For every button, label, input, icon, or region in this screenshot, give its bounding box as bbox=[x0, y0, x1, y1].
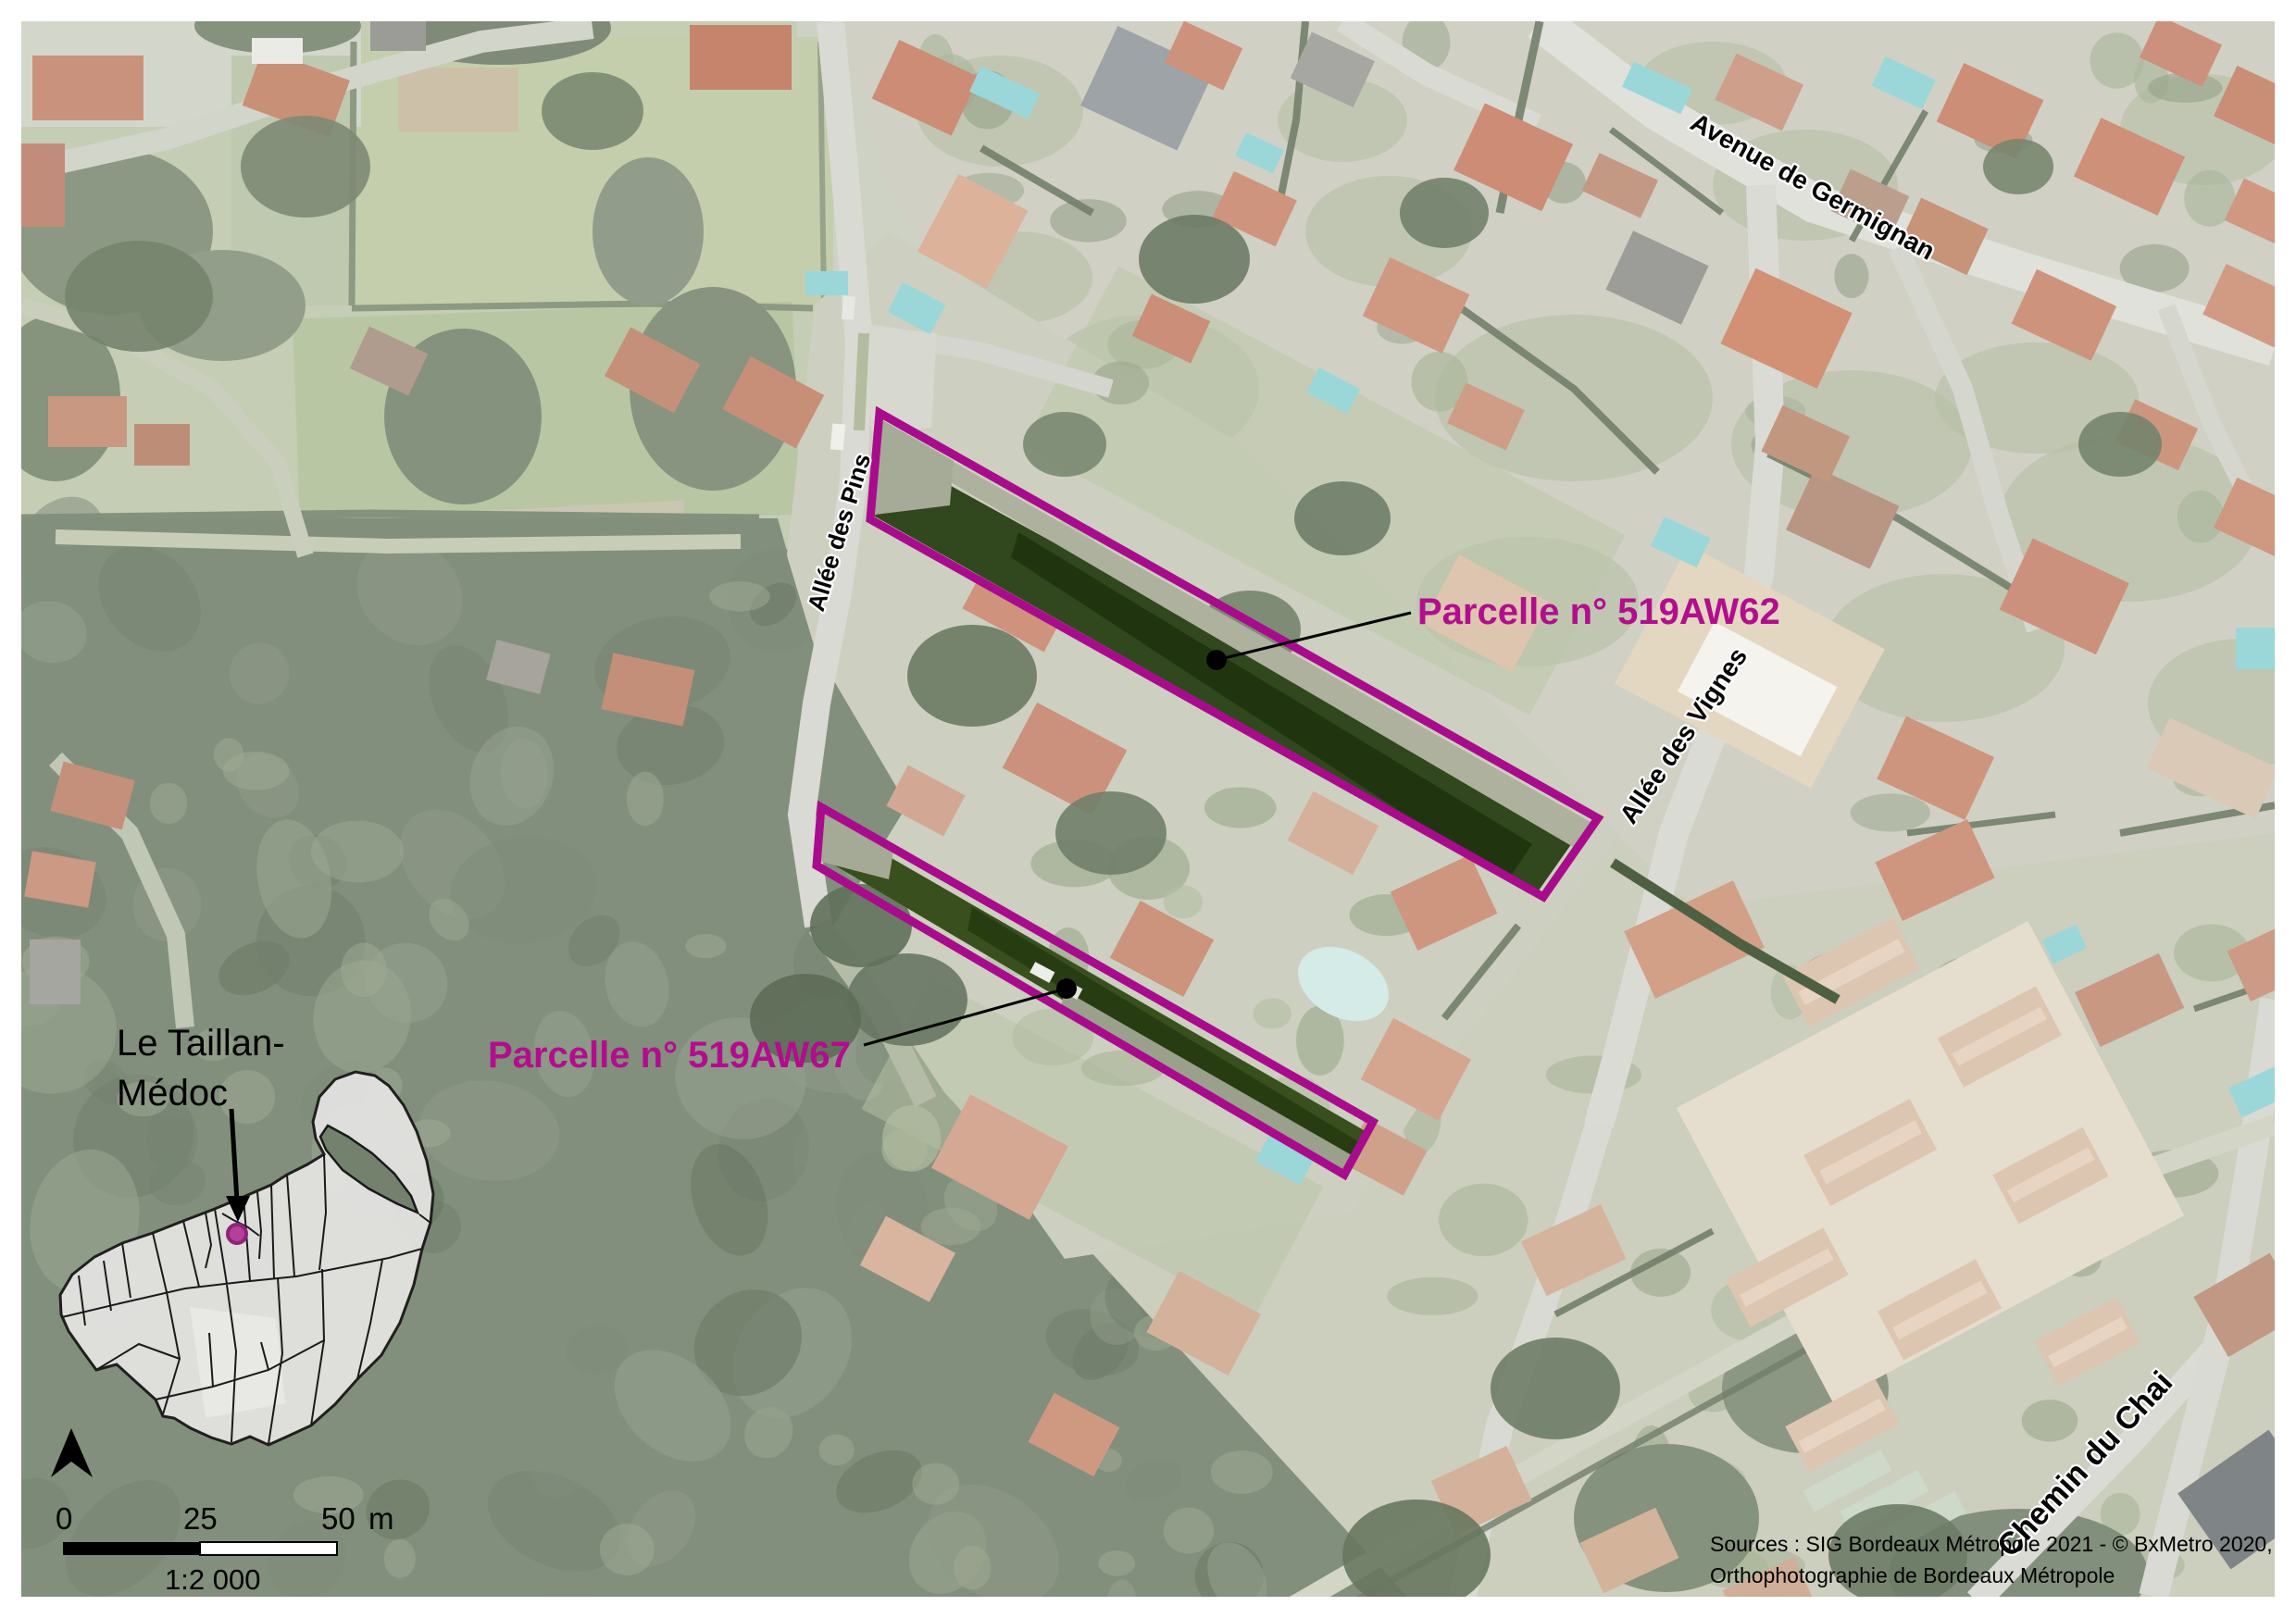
svg-text:Parcelle n° 519AW67: Parcelle n° 519AW67 bbox=[488, 1035, 851, 1076]
svg-text:Sources : SIG Bordeaux Métropo: Sources : SIG Bordeaux Métropole 2021 - … bbox=[1710, 1532, 2273, 1556]
svg-text:m: m bbox=[368, 1501, 394, 1536]
svg-text:0: 0 bbox=[56, 1501, 72, 1536]
svg-text:50: 50 bbox=[321, 1501, 356, 1536]
svg-text:1:2 000: 1:2 000 bbox=[165, 1563, 260, 1596]
svg-text:Orthophotographie de Bordeaux: Orthophotographie de Bordeaux Métropole bbox=[1710, 1563, 2115, 1587]
svg-text:25: 25 bbox=[183, 1501, 218, 1536]
svg-text:Le Taillan-: Le Taillan- bbox=[117, 1023, 285, 1064]
svg-text:Parcelle n° 519AW62: Parcelle n° 519AW62 bbox=[1417, 591, 1780, 632]
svg-text:Médoc: Médoc bbox=[117, 1073, 228, 1114]
